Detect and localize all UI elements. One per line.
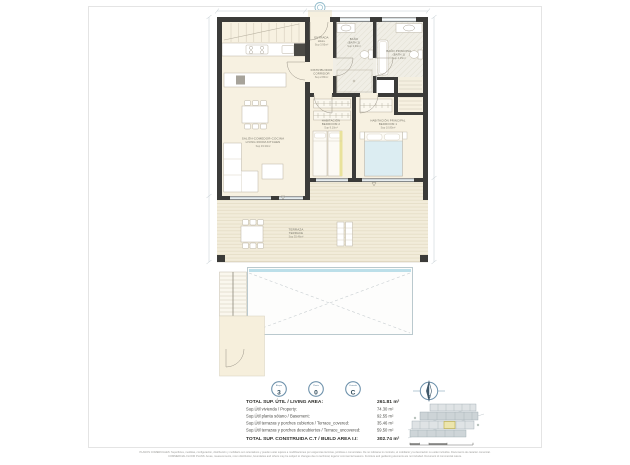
kitchen-counter xyxy=(222,43,305,56)
svg-text:Sup 3.95m²: Sup 3.95m² xyxy=(315,43,329,47)
highlighted-unit xyxy=(444,422,455,429)
staircase-exterior xyxy=(220,272,247,316)
area-row-value: 35.46 m² xyxy=(377,421,394,426)
svg-text:Vivienda: Vivienda xyxy=(349,385,358,387)
area-row-value: 59.50 m² xyxy=(377,428,394,433)
covered-terrace-floor xyxy=(310,182,428,200)
svg-text:BEDROOM 2: BEDROOM 2 xyxy=(322,122,340,126)
badge-block: Bloque 3 xyxy=(272,382,287,397)
svg-text:HALL: HALL xyxy=(318,39,326,43)
badge-unit: Vivienda C xyxy=(346,382,361,397)
area-row-value: 261.81 m² xyxy=(377,399,400,405)
area-row-value: 92.55 m² xyxy=(377,414,394,419)
svg-text:Planta: Planta xyxy=(313,384,320,387)
terrace-post xyxy=(217,255,225,262)
coffee-table xyxy=(262,164,283,179)
twin-beds xyxy=(313,131,343,176)
svg-text:3: 3 xyxy=(277,389,281,396)
svg-text:(BATH 1): (BATH 1) xyxy=(393,53,406,57)
svg-text:Sup 2.80m²: Sup 2.80m² xyxy=(315,75,329,79)
area-row-label: Sup.Útil terrazas y porches descubiertos… xyxy=(246,428,360,433)
nightstand xyxy=(360,132,365,139)
svg-text:S: S xyxy=(428,394,431,399)
room-label-terrace: TERRAZA TERRACE Sup 35.46m² xyxy=(288,228,303,239)
area-row-label: TOTAL SUP. ÚTIL / LIVING AREA: xyxy=(246,398,323,405)
room-label-bedroom2: HABITACIÓN BEDROOM 2 Sup 9.10m² xyxy=(322,118,341,130)
svg-text:C: C xyxy=(351,389,356,396)
svg-text:CORRIDOR: CORRIDOR xyxy=(313,72,329,76)
svg-text:BEDROOM 1: BEDROOM 1 xyxy=(379,122,397,126)
area-row-value: 302.74 m² xyxy=(377,436,400,442)
pool xyxy=(248,268,413,335)
svg-text:TERRACE: TERRACE xyxy=(289,231,303,235)
svg-text:0: 0 xyxy=(314,389,318,396)
pool-water-edge xyxy=(249,269,411,272)
svg-text:Bloque: Bloque xyxy=(276,385,283,387)
double-bed xyxy=(360,132,407,176)
fridge xyxy=(294,44,305,57)
dining-table xyxy=(242,101,268,130)
kitchen-island xyxy=(224,73,286,87)
floor-plan-drawing: SALÓN-COMEDOR-COCINA LIVING ROOM-KITCHEN… xyxy=(0,0,630,465)
svg-text:COMMERCIAL FLOOR PLANS: Areas,: COMMERCIAL FLOOR PLANS: Areas, measureme… xyxy=(168,454,462,458)
svg-text:Sup 4.25m²: Sup 4.25m² xyxy=(392,56,406,60)
svg-text:Sup 10.85m²: Sup 10.85m² xyxy=(381,126,396,130)
storage-room xyxy=(220,316,265,376)
area-row-label: TOTAL SUP. CONSTRUIDA C.T / BUILD AREA I… xyxy=(246,436,358,442)
bath2-floor xyxy=(336,22,373,97)
svg-text:Sup 3.60m²: Sup 3.60m² xyxy=(347,44,361,48)
terrace-table xyxy=(241,220,264,249)
area-row-label: Sup.Útil planta sótano / Basement: xyxy=(246,414,310,419)
svg-text:LIVING ROOM-KITCHEN: LIVING ROOM-KITCHEN xyxy=(246,140,281,144)
nightstand xyxy=(403,132,408,139)
badge-floor: Planta 0 xyxy=(309,382,324,397)
disclaimer-text: PLANOS COMERCIALES: Superficies, medidas… xyxy=(139,450,490,458)
svg-text:(BATH 2): (BATH 2) xyxy=(348,41,361,45)
svg-text:Sup 9.10m²: Sup 9.10m² xyxy=(324,126,338,130)
svg-text:Sup 33.30m²: Sup 33.30m² xyxy=(256,144,271,148)
area-row-value: 74.30 m² xyxy=(377,407,394,412)
area-row-label: Sup.Útil terrazas y porches cubiertos / … xyxy=(246,421,349,426)
wardrobe-bedroom1 xyxy=(360,99,392,112)
floor-plan-sheet: SALÓN-COMEDOR-COCINA LIVING ROOM-KITCHEN… xyxy=(0,0,630,465)
toilet-bowl xyxy=(360,51,369,59)
terrace-post xyxy=(420,255,428,262)
svg-text:PLANOS COMERCIALES: Superficie: PLANOS COMERCIALES: Superficies, medidas… xyxy=(139,450,490,454)
svg-text:Sup 35.46m²: Sup 35.46m² xyxy=(289,235,304,239)
area-row-label: Sup.Útil vivienda / Property: xyxy=(246,407,297,412)
